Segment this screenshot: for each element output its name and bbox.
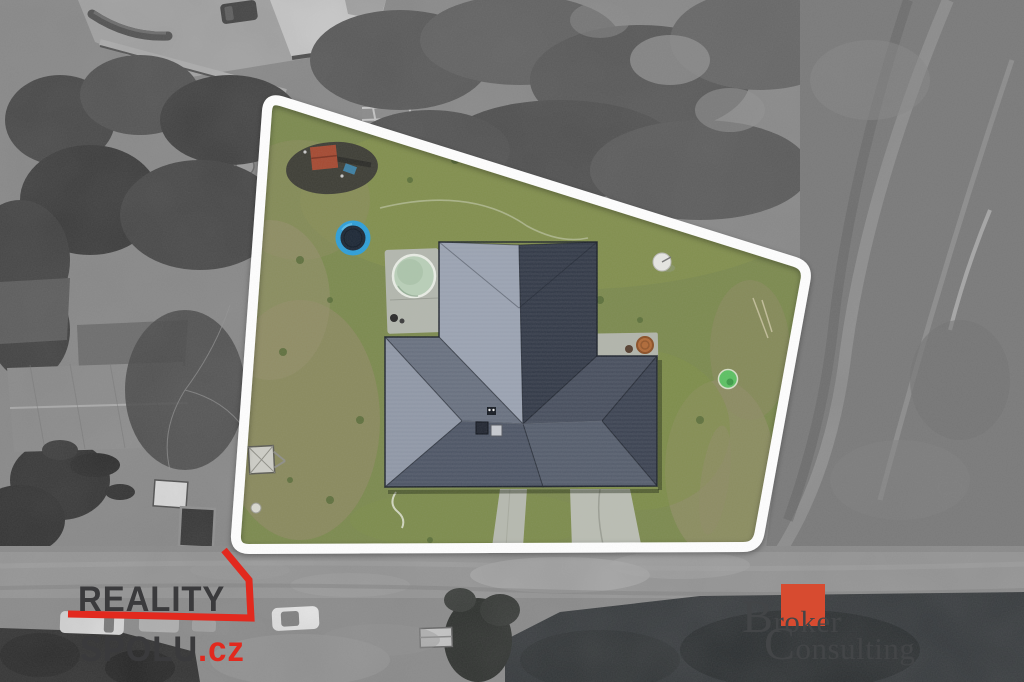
logo-word-spolu: SPOLU <box>80 630 198 669</box>
logo-line1: REALITY <box>78 582 225 617</box>
reality-spolu-logo: REALITY SPOLU.cz <box>78 582 235 617</box>
logo-line2: SPOLU.cz <box>80 632 245 667</box>
registered-mark: ® <box>860 597 868 609</box>
logo-suffix-cz: .cz <box>198 630 245 669</box>
aerial-photo-stage: REALITY SPOLU.cz Broker ® Consulting <box>0 0 1024 682</box>
logo-word-consulting: Consulting <box>764 622 915 669</box>
